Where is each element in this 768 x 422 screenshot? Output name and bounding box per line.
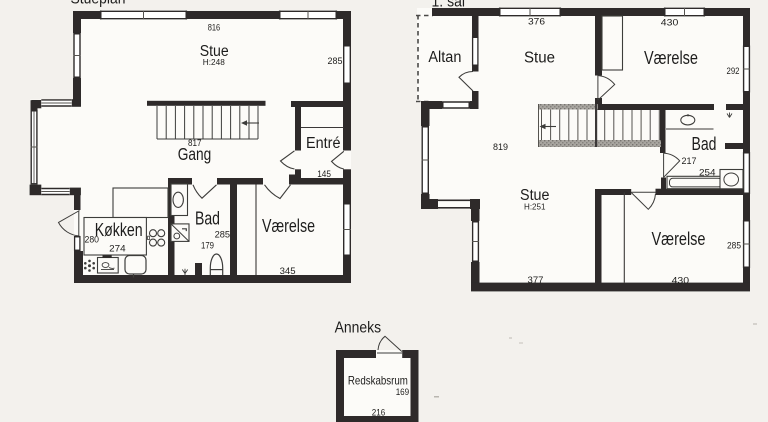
svg-text:Værelse: Værelse [644,48,698,68]
svg-text:Køkken: Køkken [95,220,143,240]
svg-text:Entré: Entré [306,135,341,152]
svg-text:345: 345 [280,266,296,276]
svg-text:Stueplan: Stueplan [71,0,126,8]
svg-text:377: 377 [528,275,544,285]
svg-text:169: 169 [396,387,410,397]
svg-text:274: 274 [109,244,126,254]
svg-text:Bad: Bad [195,208,220,228]
svg-text:216: 216 [372,408,386,418]
svg-text:H:251: H:251 [524,202,546,212]
svg-text:Bad: Bad [692,134,717,154]
svg-text:430: 430 [672,276,690,286]
svg-text:Redskabsrum: Redskabsrum [348,373,408,387]
svg-text:1. sal: 1. sal [432,0,466,10]
svg-text:376: 376 [528,16,545,26]
svg-text:217: 217 [682,156,697,166]
svg-text:819: 819 [493,142,508,152]
svg-text:Værelse: Værelse [652,229,706,249]
svg-text:179: 179 [201,241,214,251]
svg-text:Altan: Altan [428,49,461,66]
svg-text:Værelse: Værelse [262,216,315,236]
svg-text:285: 285 [215,229,231,239]
svg-text:H:248: H:248 [203,57,225,67]
svg-text:285: 285 [727,241,741,251]
svg-text:292: 292 [727,66,740,76]
svg-text:254: 254 [699,168,716,178]
svg-text:Stue: Stue [524,50,555,67]
svg-text:Anneks: Anneks [335,320,382,337]
svg-text:145: 145 [317,169,331,179]
svg-text:430: 430 [661,18,679,28]
svg-text:816: 816 [208,23,221,33]
svg-text:Gang: Gang [178,144,212,164]
svg-text:280: 280 [85,234,100,244]
svg-text:285: 285 [328,56,343,66]
